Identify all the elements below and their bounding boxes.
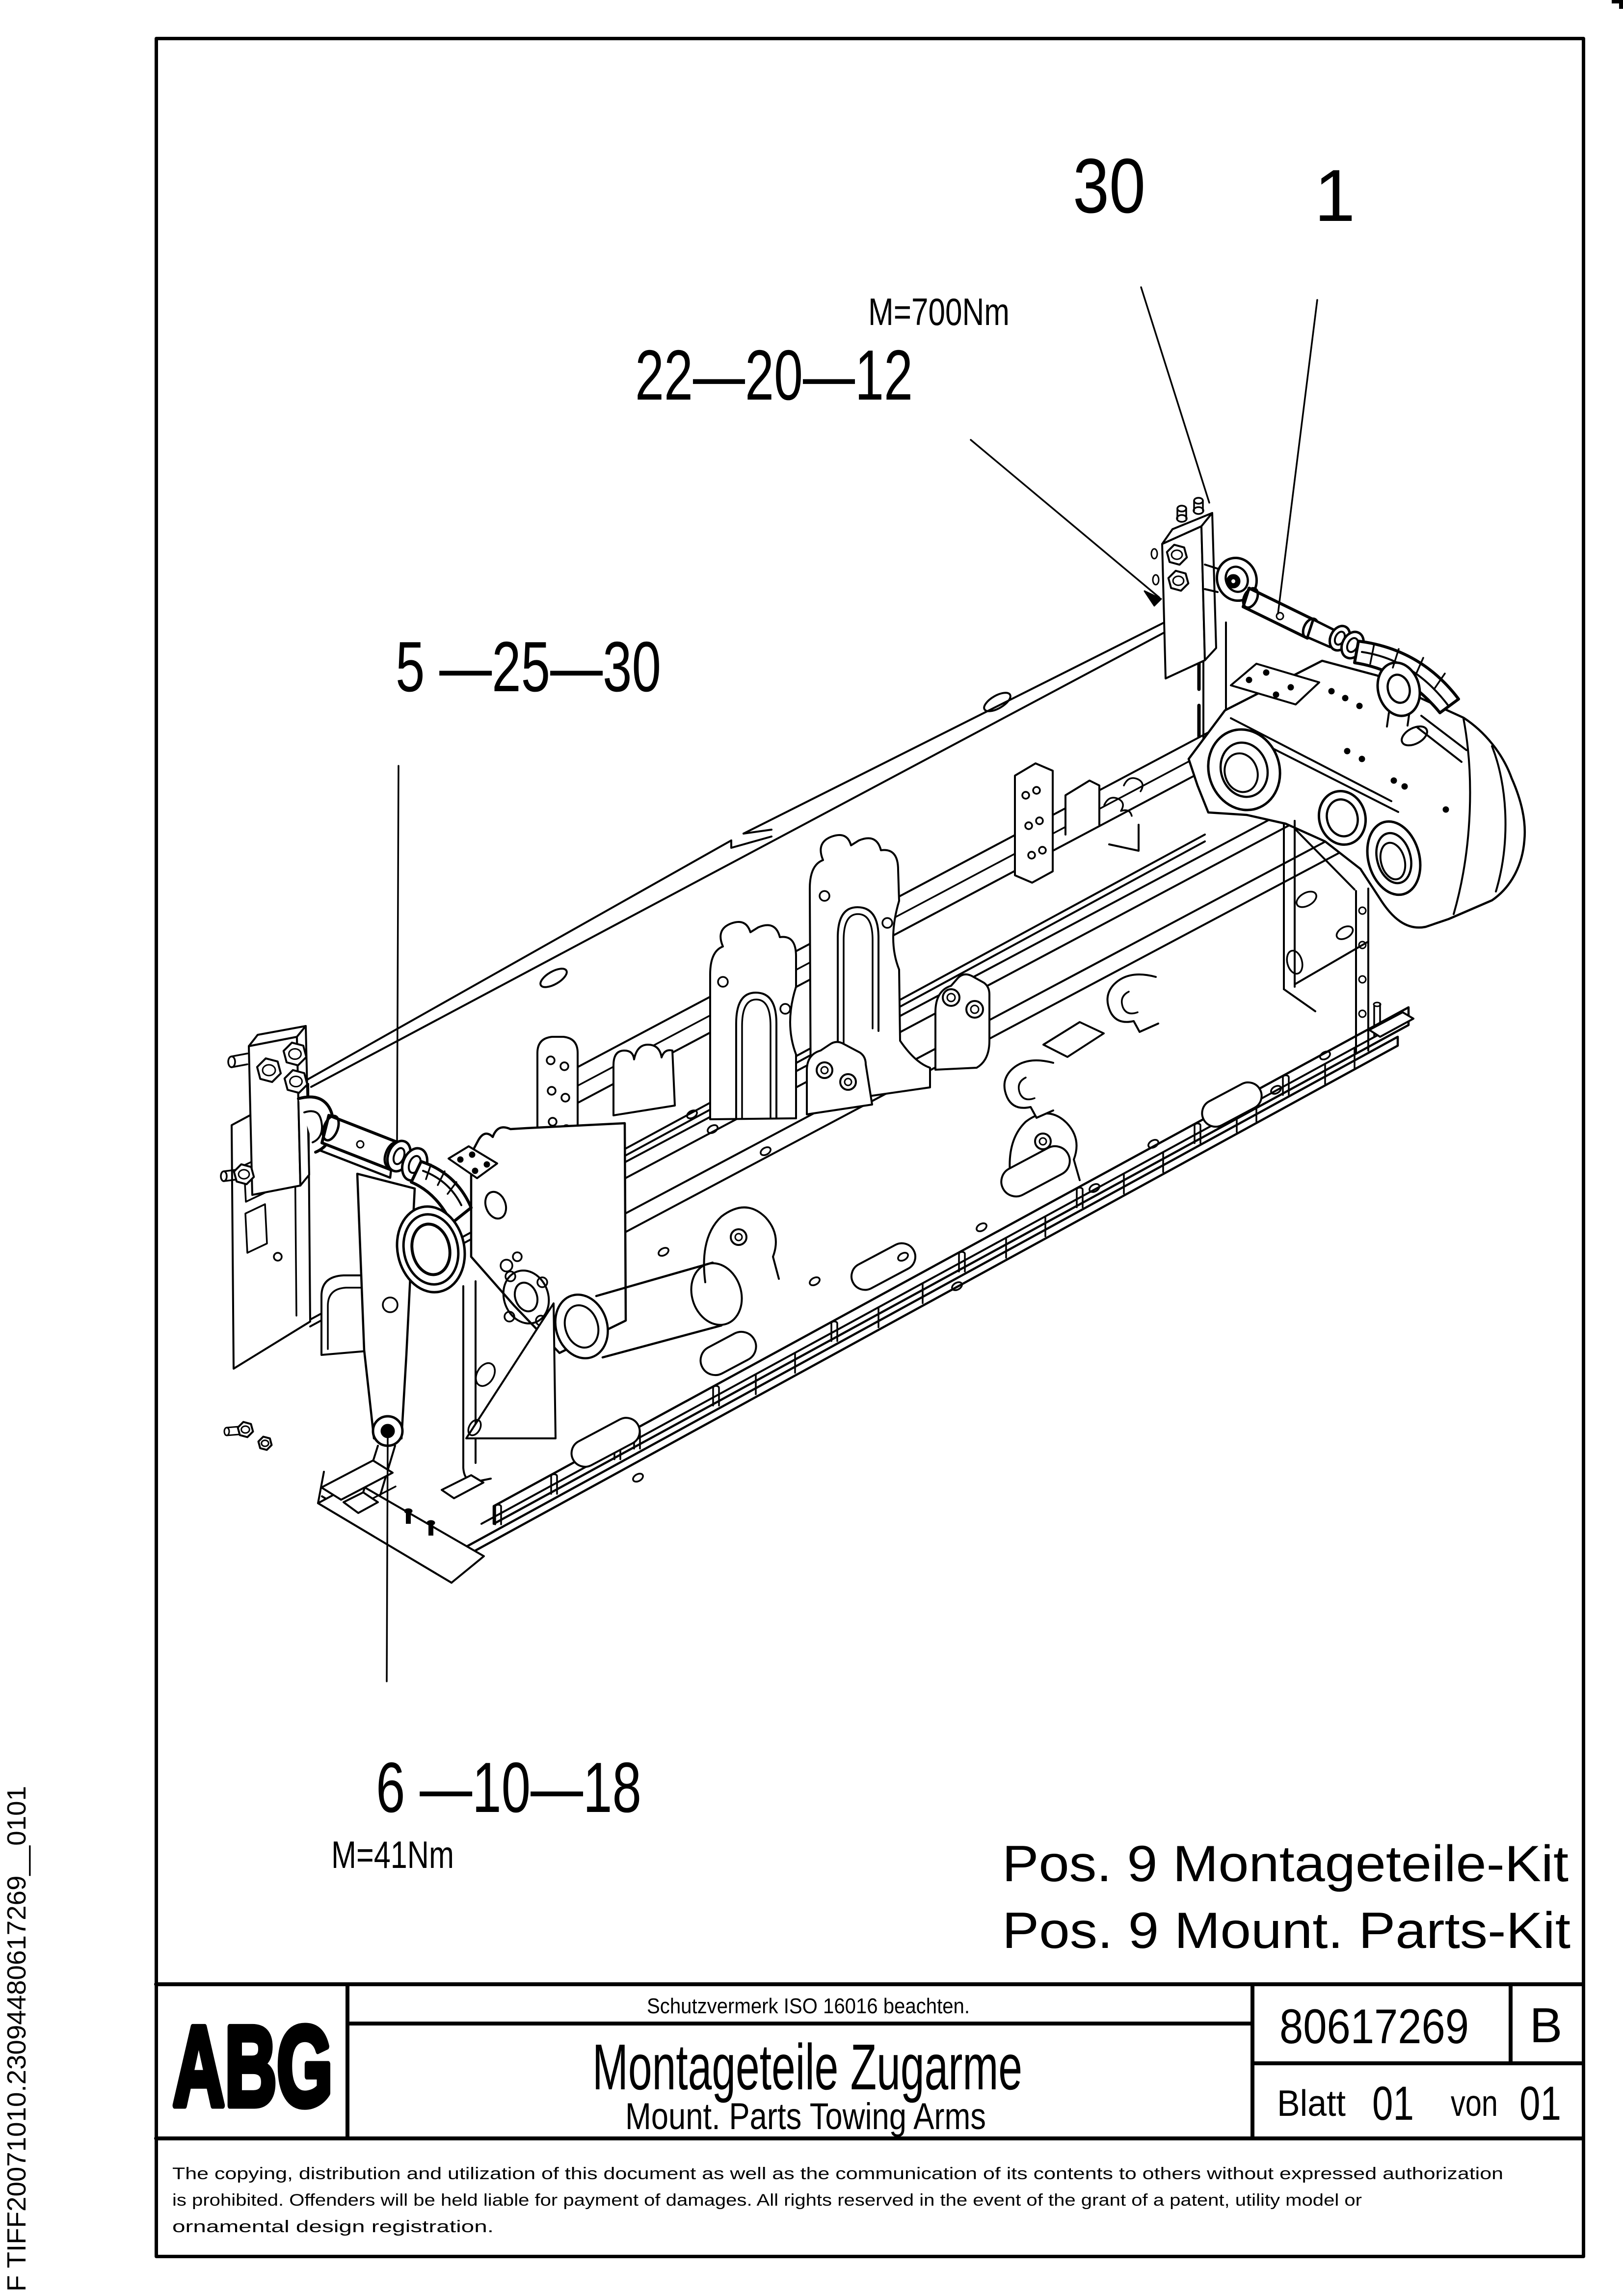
svg-text:5 —25—30: 5 —25—30 xyxy=(396,627,661,706)
svg-text:B: B xyxy=(1530,1998,1563,2053)
svg-text:01: 01 xyxy=(1372,2077,1414,2130)
svg-text:M=700Nm: M=700Nm xyxy=(868,290,1010,333)
svg-text:1: 1 xyxy=(1314,154,1355,237)
svg-text:30: 30 xyxy=(1073,143,1145,229)
svg-text:6 —10—18: 6 —10—18 xyxy=(376,1748,641,1827)
svg-text:F TIFF20071010.23094480617269_: F TIFF20071010.23094480617269__0101 xyxy=(2,1786,31,2292)
svg-text:is prohibited. Offenders will: is prohibited. Offenders will be held li… xyxy=(172,2191,1362,2210)
svg-text:01: 01 xyxy=(1519,2077,1561,2130)
svg-text:ABG: ABG xyxy=(173,2003,333,2130)
svg-text:ornamental design registration: ornamental design registration. xyxy=(172,2217,494,2236)
svg-text:Schutzvermerk ISO 16016 beacht: Schutzvermerk ISO 16016 beachten. xyxy=(647,1994,970,2018)
svg-text:80617269: 80617269 xyxy=(1279,1999,1469,2053)
svg-text:M=41Nm: M=41Nm xyxy=(331,1833,454,1876)
svg-text:Pos. 9 Mount. Parts-Kit: Pos. 9 Mount. Parts-Kit xyxy=(1002,1902,1570,1959)
svg-text:22—20—12: 22—20—12 xyxy=(635,335,913,415)
svg-text:Montageteile Zugarme: Montageteile Zugarme xyxy=(592,2031,1022,2103)
svg-text:The copying, distribution and: The copying, distribution and utilizatio… xyxy=(172,2164,1503,2183)
svg-text:Pos. 9 Montageteile-Kit: Pos. 9 Montageteile-Kit xyxy=(1002,1836,1569,1892)
svg-text:Blatt: Blatt xyxy=(1277,2082,1346,2124)
svg-text:Mount. Parts Towing Arms: Mount. Parts Towing Arms xyxy=(625,2096,986,2137)
svg-text:von: von xyxy=(1451,2082,1498,2124)
